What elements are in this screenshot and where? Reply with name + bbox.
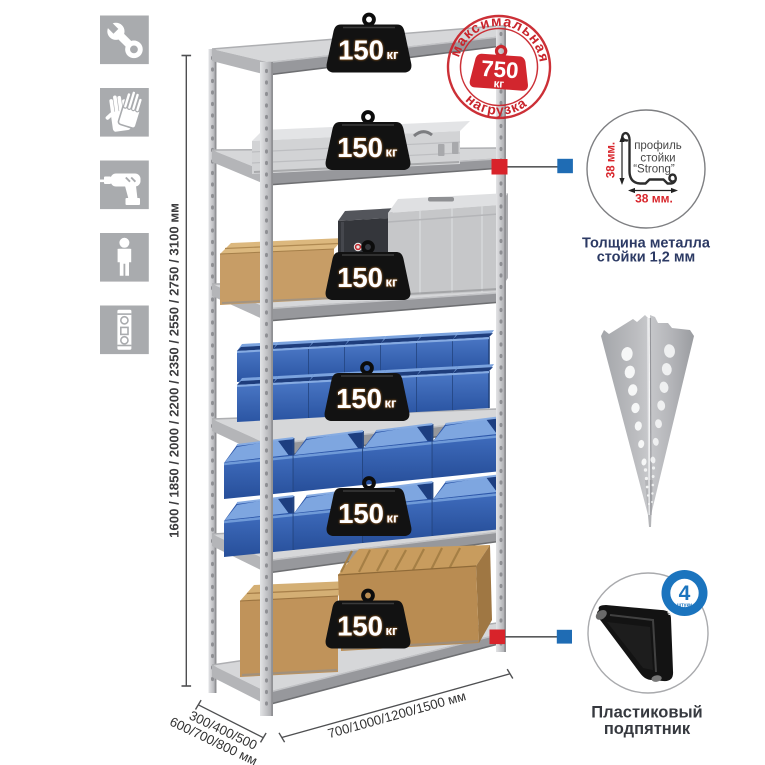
svg-text:150: 150 — [338, 35, 384, 66]
svg-text:кг: кг — [493, 78, 505, 91]
svg-text:профиль: профиль — [634, 140, 682, 152]
svg-text:стойки 1,2 мм: стойки 1,2 мм — [597, 250, 696, 266]
svg-text:подпятник: подпятник — [604, 720, 691, 738]
svg-text:кг: кг — [387, 47, 400, 62]
svg-text:кг: кг — [386, 145, 399, 160]
svg-text:150: 150 — [338, 498, 384, 529]
svg-text:1600 / 1850 / 2000 / 2200 / 23: 1600 / 1850 / 2000 / 2200 / 2350 / 2550 … — [167, 203, 182, 538]
svg-text:150: 150 — [337, 611, 383, 642]
svg-text:штуки: штуки — [677, 603, 692, 609]
svg-text:38 мм.: 38 мм. — [606, 142, 618, 178]
svg-text:38 мм.: 38 мм. — [635, 192, 673, 206]
svg-text:700/1000/1200/1500 мм: 700/1000/1200/1500 мм — [326, 688, 468, 741]
svg-text:150: 150 — [337, 132, 383, 163]
svg-text:150: 150 — [336, 383, 382, 414]
svg-text:кг: кг — [385, 396, 398, 411]
svg-text:кг: кг — [386, 275, 399, 290]
svg-text:“Strong”: “Strong” — [633, 164, 675, 176]
svg-text:кг: кг — [386, 623, 399, 638]
svg-text:кг: кг — [387, 511, 400, 526]
svg-text:Пластиковый: Пластиковый — [591, 704, 702, 722]
svg-text:150: 150 — [337, 262, 383, 293]
